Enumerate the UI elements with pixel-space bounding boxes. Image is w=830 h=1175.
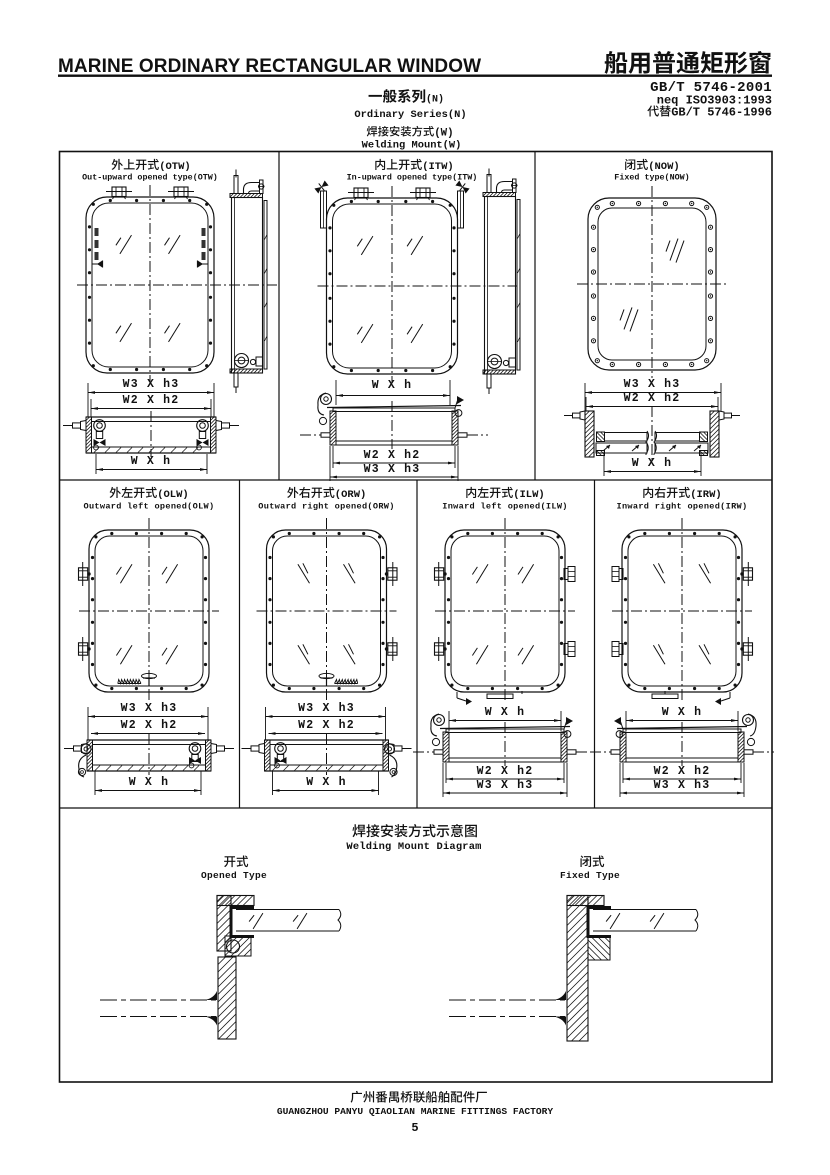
svg-text:W X h: W X h (485, 706, 526, 719)
svg-text:Fixed Type: Fixed Type (560, 870, 620, 881)
svg-text:Outward left opened(OLW): Outward left opened(OLW) (84, 502, 215, 512)
svg-text:Outward right opened(ORW): Outward right opened(ORW) (258, 502, 394, 512)
svg-text:W3 X h3: W3 X h3 (654, 779, 711, 792)
svg-text:GB/T 5746-1996: GB/T 5746-1996 (671, 106, 772, 120)
svg-text:W2 X h2: W2 X h2 (121, 719, 178, 732)
svg-text:W3 X h3: W3 X h3 (298, 702, 355, 715)
svg-text:W X h: W X h (306, 776, 347, 789)
svg-text:W2 X h2: W2 X h2 (364, 449, 421, 462)
svg-text:Inward right opened(IRW): Inward right opened(IRW) (617, 502, 748, 512)
svg-text:(OLW): (OLW) (157, 489, 189, 501)
svg-text:(OTW): (OTW) (159, 161, 191, 173)
svg-text:W2 X h2: W2 X h2 (654, 765, 711, 778)
svg-text:W3 X h3: W3 X h3 (121, 702, 178, 715)
svg-text:W X h: W X h (131, 455, 172, 468)
svg-text:W2 X h2: W2 X h2 (624, 392, 681, 405)
svg-text:W X h: W X h (372, 379, 413, 392)
svg-text:(ILW): (ILW) (513, 489, 545, 501)
svg-text:W3 X h3: W3 X h3 (624, 378, 681, 391)
svg-text:GUANGZHOU PANYU QIAOLIAN MARIN: GUANGZHOU PANYU QIAOLIAN MARINE FITTINGS… (277, 1106, 554, 1117)
svg-text:W X h: W X h (129, 776, 170, 789)
svg-text:In-upward opened type(ITW): In-upward opened type(ITW) (347, 173, 478, 183)
svg-text:MARINE ORDINARY RECTANGULAR WI: MARINE ORDINARY RECTANGULAR WINDOW (58, 56, 481, 77)
svg-text:Opened Type: Opened Type (201, 870, 267, 881)
svg-text:Ordinary Series(N): Ordinary Series(N) (354, 109, 466, 121)
svg-text:(NOW): (NOW) (648, 161, 680, 173)
svg-text:(IRW): (IRW) (690, 489, 722, 501)
svg-text:Inward left opened(ILW): Inward left opened(ILW) (442, 502, 568, 512)
svg-text:Out-upward opened type(OTW): Out-upward opened type(OTW) (82, 173, 218, 183)
svg-text:(W): (W) (434, 128, 453, 140)
svg-text:Welding Mount Diagram: Welding Mount Diagram (346, 841, 481, 853)
svg-text:Welding Mount(W): Welding Mount(W) (362, 140, 462, 152)
svg-text:5: 5 (411, 1121, 418, 1135)
svg-text:W2 X h2: W2 X h2 (298, 719, 355, 732)
svg-text:W2 X h2: W2 X h2 (123, 394, 180, 407)
svg-text:W X h: W X h (662, 706, 703, 719)
svg-text:(ITW): (ITW) (422, 161, 454, 173)
svg-text:W2 X h2: W2 X h2 (477, 765, 534, 778)
svg-text:(ORW): (ORW) (335, 489, 367, 501)
svg-text:(N): (N) (426, 94, 444, 106)
svg-text:W X h: W X h (632, 457, 673, 470)
svg-text:W3 X h3: W3 X h3 (123, 378, 180, 391)
svg-text:Fixed type(NOW): Fixed type(NOW) (614, 173, 689, 183)
svg-text:W3 X h3: W3 X h3 (364, 463, 421, 476)
svg-text:W3 X h3: W3 X h3 (477, 779, 534, 792)
